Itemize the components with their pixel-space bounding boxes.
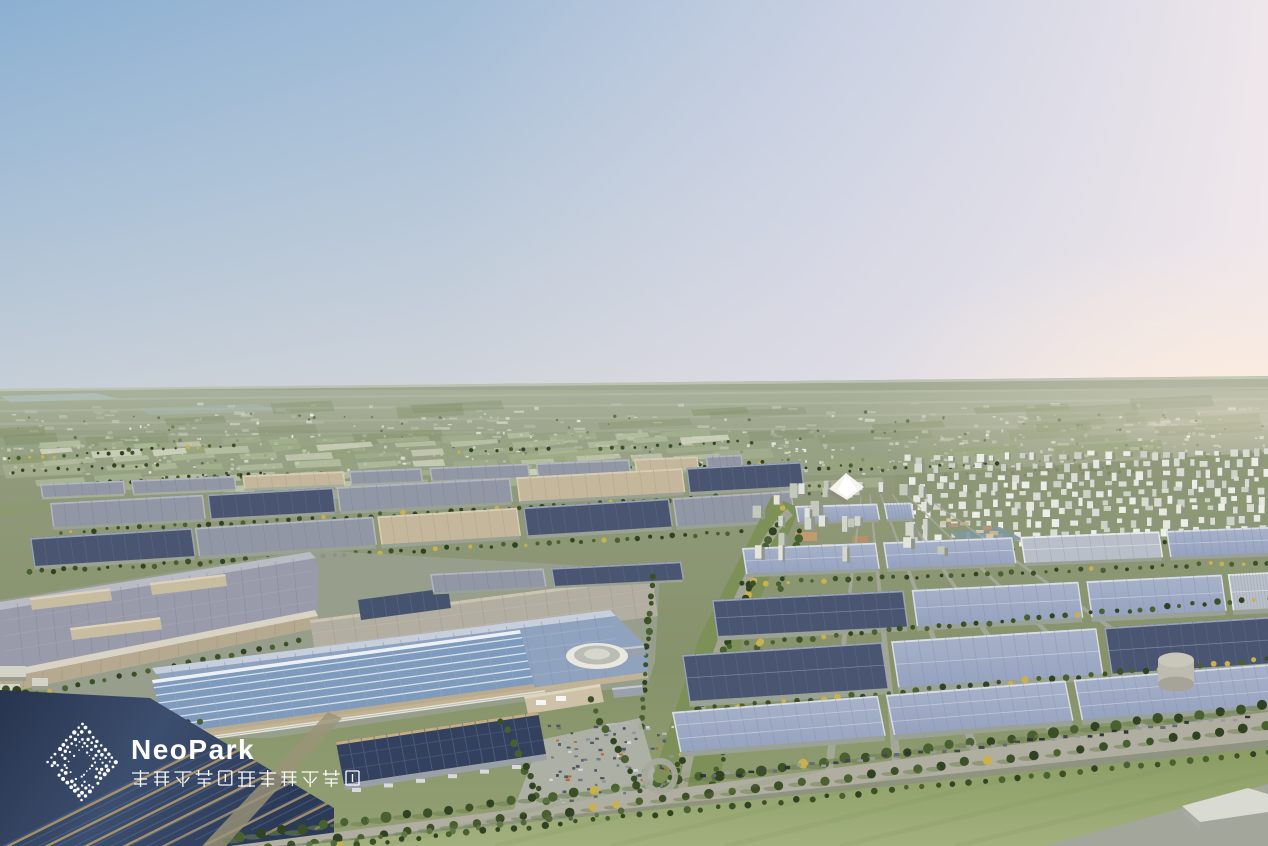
svg-text:NeoPark: NeoPark	[131, 734, 255, 765]
